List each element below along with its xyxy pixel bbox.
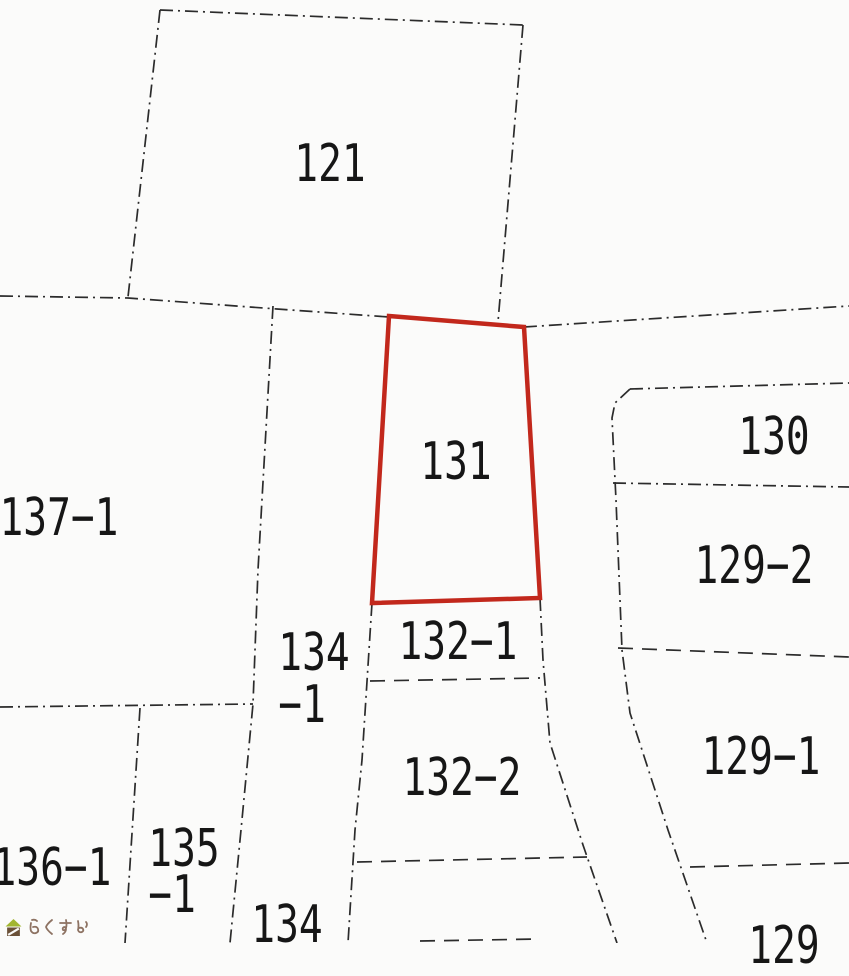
parcel-129-left-boundary xyxy=(612,389,707,943)
parcel-129-2-bottom-boundary xyxy=(618,648,849,657)
parcel-132-2-bottom-boundary xyxy=(357,857,587,862)
parcel-label-132-1: 132−1 xyxy=(399,616,518,668)
parcel-label-134-1: 134−1 xyxy=(278,627,349,731)
parcel-label-135-1: 135−1 xyxy=(148,826,219,918)
parcel-label-129: 129 xyxy=(748,920,819,972)
parcel-121-left-boundary xyxy=(128,10,160,297)
parcel-label-134: 134 xyxy=(251,899,322,951)
parcel-label-137-1: 137−1 xyxy=(0,492,118,544)
parcel-136-1-top-boundary xyxy=(0,704,253,707)
parcel-label-131: 131 xyxy=(420,436,491,488)
parcel-label-129-1: 129−1 xyxy=(702,731,821,783)
logo-text-kana xyxy=(27,918,91,936)
parcel-132-1-bottom-boundary xyxy=(370,678,540,681)
parcel-129-1-bottom-boundary xyxy=(690,863,849,867)
road-upper-boundary-line xyxy=(0,296,849,327)
cadastral-map[interactable]: 121 131 137−1 130 129−2 129−1 132−1 132−… xyxy=(0,0,849,943)
parcel-label-129-2: 129−2 xyxy=(695,540,814,592)
parcel-130-top-boundary xyxy=(630,383,849,389)
parcel-label-136-1: 136−1 xyxy=(0,842,111,894)
parcel-134-1-right-boundary xyxy=(348,603,372,943)
house-icon xyxy=(5,919,22,936)
parcel-label-121: 121 xyxy=(294,138,365,190)
bottom-edge-boundary xyxy=(420,939,540,941)
parcel-130-bottom-boundary xyxy=(613,483,849,487)
road-left-edge-line xyxy=(540,598,617,943)
parcel-label-130: 130 xyxy=(738,411,809,463)
parcel-label-132-2: 132−2 xyxy=(403,752,522,804)
parcel-137-1-right-boundary xyxy=(230,306,273,943)
parcel-121-top-boundary xyxy=(160,10,523,25)
parcel-121-right-boundary xyxy=(498,25,523,322)
rakusumu-logo: らくすむ xyxy=(5,916,91,938)
parcel-136-1-right-boundary xyxy=(125,708,140,943)
